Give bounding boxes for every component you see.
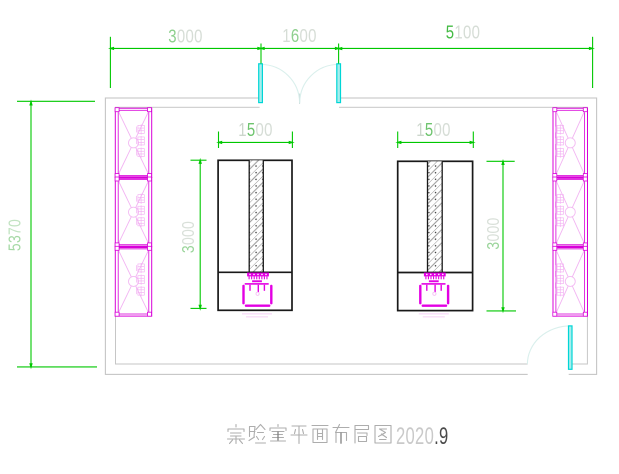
svg-text:3000: 3000: [485, 217, 504, 249]
svg-text:3000: 3000: [168, 26, 203, 47]
svg-text:1500: 1500: [416, 120, 451, 141]
svg-text:2020.9: 2020.9: [396, 423, 449, 450]
svg-text:5370: 5370: [6, 219, 25, 251]
svg-text:5100: 5100: [446, 22, 481, 43]
svg-text:1600: 1600: [282, 25, 317, 46]
svg-text:3000: 3000: [180, 221, 199, 253]
svg-text:1500: 1500: [238, 120, 273, 141]
